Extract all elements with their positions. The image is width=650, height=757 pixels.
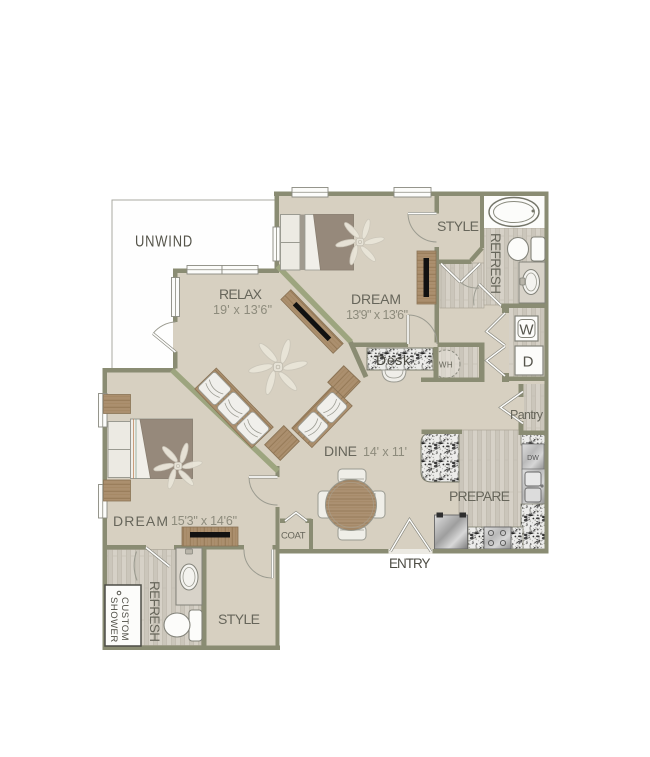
svg-text:REFRESH: REFRESH	[488, 233, 503, 294]
svg-text:DREAM: DREAM	[351, 291, 401, 307]
svg-text:14' x 11': 14' x 11'	[363, 445, 407, 459]
svg-text:UNWIND: UNWIND	[135, 234, 193, 251]
svg-text:Desk: Desk	[376, 352, 411, 368]
svg-text:Pantry: Pantry	[510, 408, 544, 422]
svg-text:WH: WH	[439, 361, 453, 370]
svg-text:ENTRY: ENTRY	[389, 556, 432, 571]
svg-text:DINE: DINE	[324, 443, 357, 459]
svg-text:19' x 13'6": 19' x 13'6"	[213, 303, 272, 317]
svg-text:STYLE: STYLE	[218, 611, 260, 627]
svg-text:15'3" x 14'6": 15'3" x 14'6"	[171, 514, 237, 528]
svg-text:REFRESH: REFRESH	[147, 581, 162, 642]
svg-text:PREPARE: PREPARE	[449, 488, 511, 504]
svg-text:SHOWER: SHOWER	[108, 597, 119, 643]
svg-text:W: W	[519, 322, 534, 339]
svg-text:STYLE: STYLE	[437, 218, 479, 234]
svg-text:D: D	[523, 354, 534, 371]
svg-text:DREAM: DREAM	[113, 513, 168, 529]
svg-text:RELAX: RELAX	[219, 286, 263, 302]
svg-text:CUSTOM: CUSTOM	[119, 597, 130, 641]
svg-text:DW: DW	[527, 455, 539, 462]
svg-text:COAT: COAT	[281, 531, 306, 542]
svg-text:13'9" x 13'6": 13'9" x 13'6"	[346, 308, 408, 322]
